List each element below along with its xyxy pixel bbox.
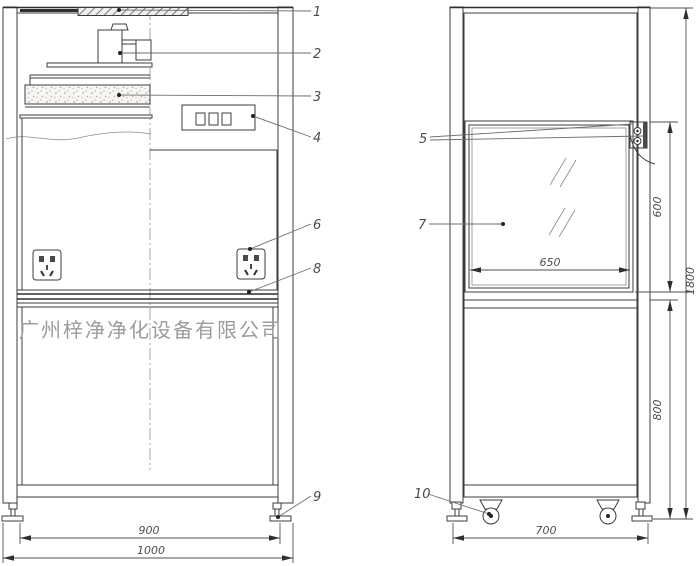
front-left-column	[3, 7, 17, 503]
dimension-depth: 700	[453, 523, 648, 544]
dimension-700-label: 700	[536, 524, 557, 537]
leveling-foot-side-right	[632, 502, 652, 521]
control-panel	[182, 105, 255, 130]
side-left-column	[450, 7, 463, 503]
dimension-inner-width: 900	[20, 523, 280, 544]
fan-blower	[47, 24, 152, 67]
callout-2: 2	[313, 47, 321, 62]
dimension-650-label: 650	[540, 256, 561, 269]
diffuser-grille	[20, 115, 152, 118]
dimension-900-label: 900	[139, 524, 160, 537]
front-view: 广州梓净净化设备有限公司 900 1000	[2, 5, 321, 563]
drawing-sheet: 广州梓净净化设备有限公司 900 1000	[0, 0, 700, 566]
engineering-drawing-clean-bench: 广州梓净净化设备有限公司 900 1000	[0, 0, 700, 566]
leveling-foot-side-left	[447, 502, 467, 521]
dimension-overall-height: 1800	[650, 8, 697, 519]
fan-base-plate	[47, 63, 152, 67]
company-watermark: 广州梓净净化设备有限公司	[19, 318, 283, 342]
caster-right	[597, 500, 619, 524]
callout-6: 6	[313, 218, 321, 233]
callout-8: 8	[313, 262, 321, 277]
pre-filter	[78, 8, 188, 16]
callout-9: 9	[313, 490, 321, 505]
dimension-lower-height: 800	[650, 300, 678, 519]
front-right-column	[278, 7, 293, 503]
callout-5: 5	[419, 132, 427, 147]
hepa-filter	[25, 85, 150, 104]
section-break-line	[6, 132, 151, 140]
dimension-800-label: 800	[651, 400, 664, 421]
worktop	[17, 290, 278, 307]
leveling-foot-front-left	[2, 503, 23, 521]
side-right-column	[638, 7, 650, 503]
callout-3: 3	[313, 90, 321, 105]
side-view: 650	[414, 7, 697, 544]
leveling-foot-front-right	[270, 503, 291, 521]
callout-10: 10	[414, 487, 431, 502]
dimension-1800-label: 1800	[684, 267, 697, 295]
callout-4: 4	[313, 131, 321, 146]
callout-7: 7	[418, 218, 427, 233]
callout-1: 1	[313, 5, 321, 20]
dimension-1000-label: 1000	[137, 544, 165, 557]
dimension-600-label: 600	[651, 197, 664, 218]
power-socket-left	[33, 250, 61, 280]
power-socket-right	[237, 249, 265, 279]
